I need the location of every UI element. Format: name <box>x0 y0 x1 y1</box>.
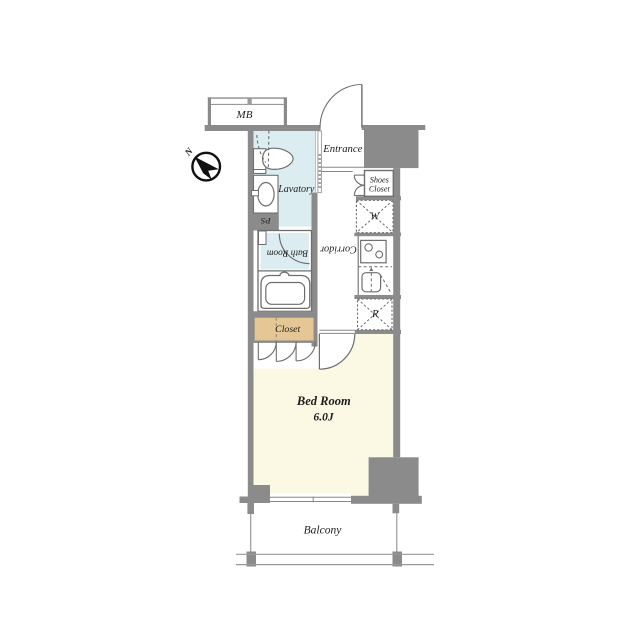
svg-text:Balcony: Balcony <box>304 524 343 536</box>
svg-text:MB: MB <box>236 109 253 121</box>
svg-text:Closet: Closet <box>369 185 391 194</box>
svg-text:Bed Room: Bed Room <box>296 394 351 408</box>
svg-text:PS: PS <box>260 216 271 226</box>
svg-text:6.0J: 6.0J <box>313 412 334 424</box>
svg-text:Closet: Closet <box>275 324 300 335</box>
svg-text:W: W <box>370 211 380 222</box>
svg-text:R: R <box>371 309 379 320</box>
svg-text:N: N <box>183 146 196 159</box>
svg-text:Shoes: Shoes <box>370 176 389 185</box>
svg-text:Entrance: Entrance <box>322 143 362 155</box>
svg-text:Lavatory: Lavatory <box>277 184 315 195</box>
svg-text:Corridor: Corridor <box>320 244 357 255</box>
svg-text:Bath Room: Bath Room <box>266 248 308 258</box>
